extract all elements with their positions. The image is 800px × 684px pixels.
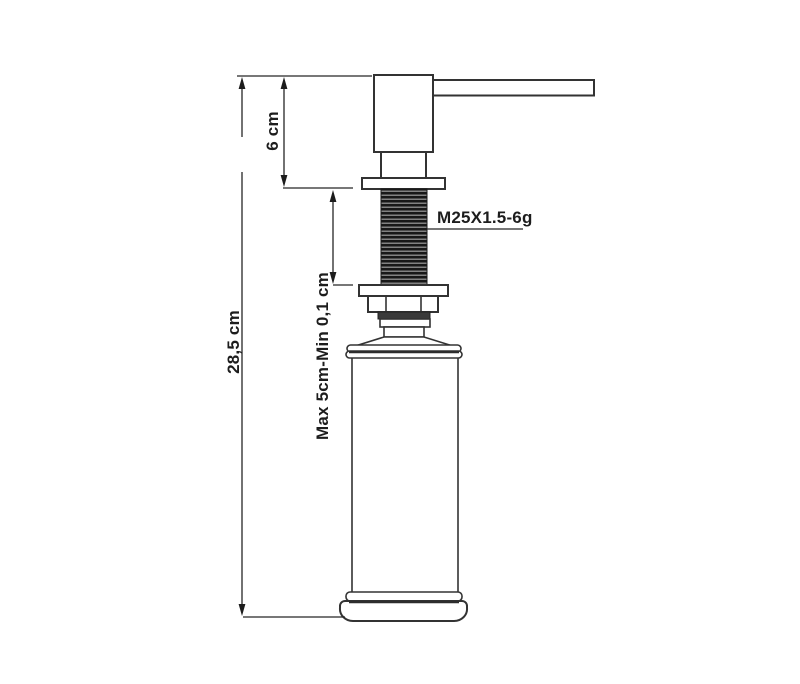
mounting-flange [362,178,445,189]
gasket-ring [378,312,430,319]
thread-range-label: Max 5cm-Min 0,1 cm [313,272,332,440]
arrow-down-icon [239,604,246,616]
dispenser-outline [340,75,594,621]
bottle-base [340,601,467,621]
dimension-thread-length: Max 5cm-Min 0,1 cm [313,190,353,440]
total-height-label: 28,5 cm [224,310,243,374]
bottle-collar [380,319,430,327]
pump-head [374,75,433,152]
threaded-shaft [381,189,427,285]
arrow-up-icon [281,77,288,89]
bottle-neck [384,327,424,337]
pump-height-label: 6 cm [263,111,282,151]
arrow-up-icon [330,190,337,202]
thread-spec-callout: M25X1.5-6g [427,208,533,229]
arrow-up-icon [239,77,246,89]
base-bead [346,592,462,601]
arrow-down-icon [281,175,288,187]
washer-plate [359,285,448,296]
pump-neck [381,152,426,178]
thread-spec-label: M25X1.5-6g [437,208,533,227]
soap-dispenser-diagram: 28,5 cm 6 cm Max 5cm-Min 0,1 cm M25X1.5-… [0,0,800,684]
dimension-pump-height: 6 cm [263,77,353,188]
spout-arm [431,80,594,96]
mounting-nut [368,296,438,312]
technical-drawing-page: 28,5 cm 6 cm Max 5cm-Min 0,1 cm M25X1.5-… [0,0,800,684]
bottle-body [352,356,458,594]
